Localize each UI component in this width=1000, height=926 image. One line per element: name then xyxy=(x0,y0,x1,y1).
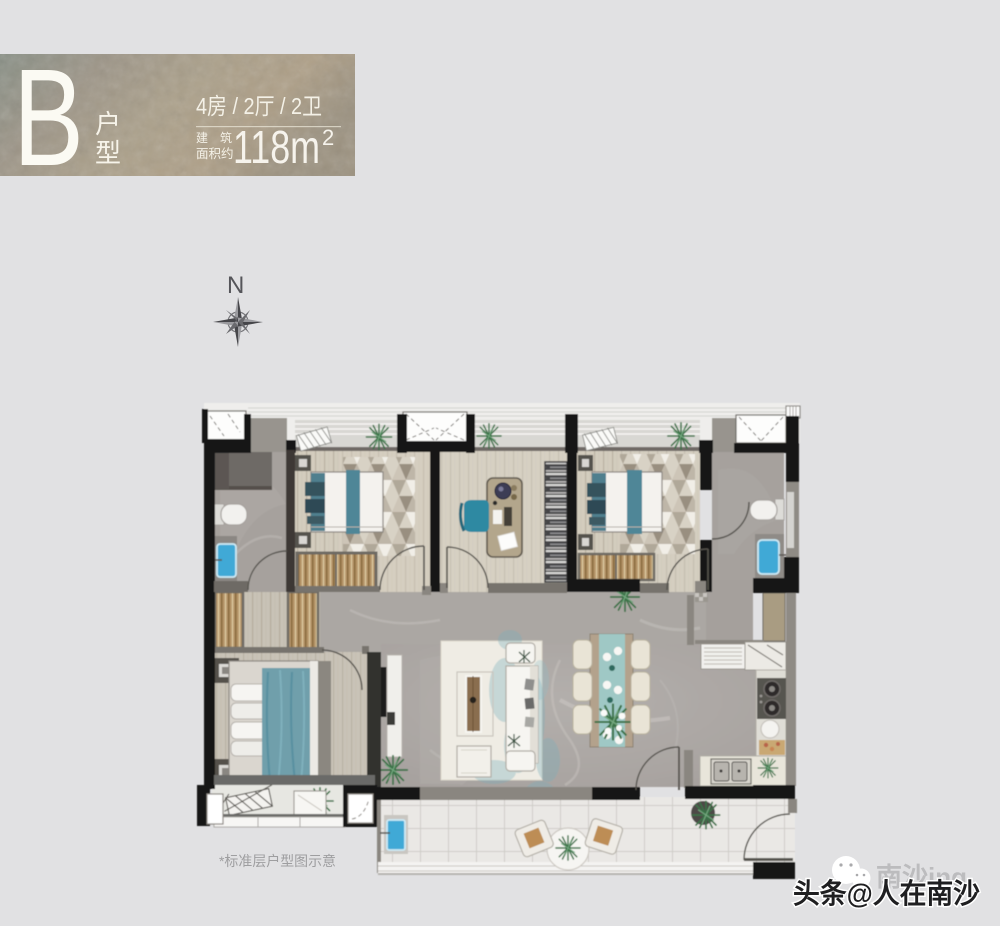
svg-text:面积约: 面积约 xyxy=(196,146,234,161)
svg-text:4房 / 2厅 / 2卫: 4房 / 2厅 / 2卫 xyxy=(196,93,322,119)
svg-text:户: 户 xyxy=(95,109,121,139)
svg-text:2: 2 xyxy=(322,125,334,150)
svg-text:N: N xyxy=(227,272,244,299)
svg-text:118m: 118m xyxy=(233,121,320,173)
svg-text:B: B xyxy=(13,42,84,196)
svg-text:型: 型 xyxy=(95,138,121,168)
svg-text:*标准层户型图示意: *标准层户型图示意 xyxy=(219,853,336,869)
svg-text:头条@人在南沙: 头条@人在南沙 xyxy=(793,878,980,909)
